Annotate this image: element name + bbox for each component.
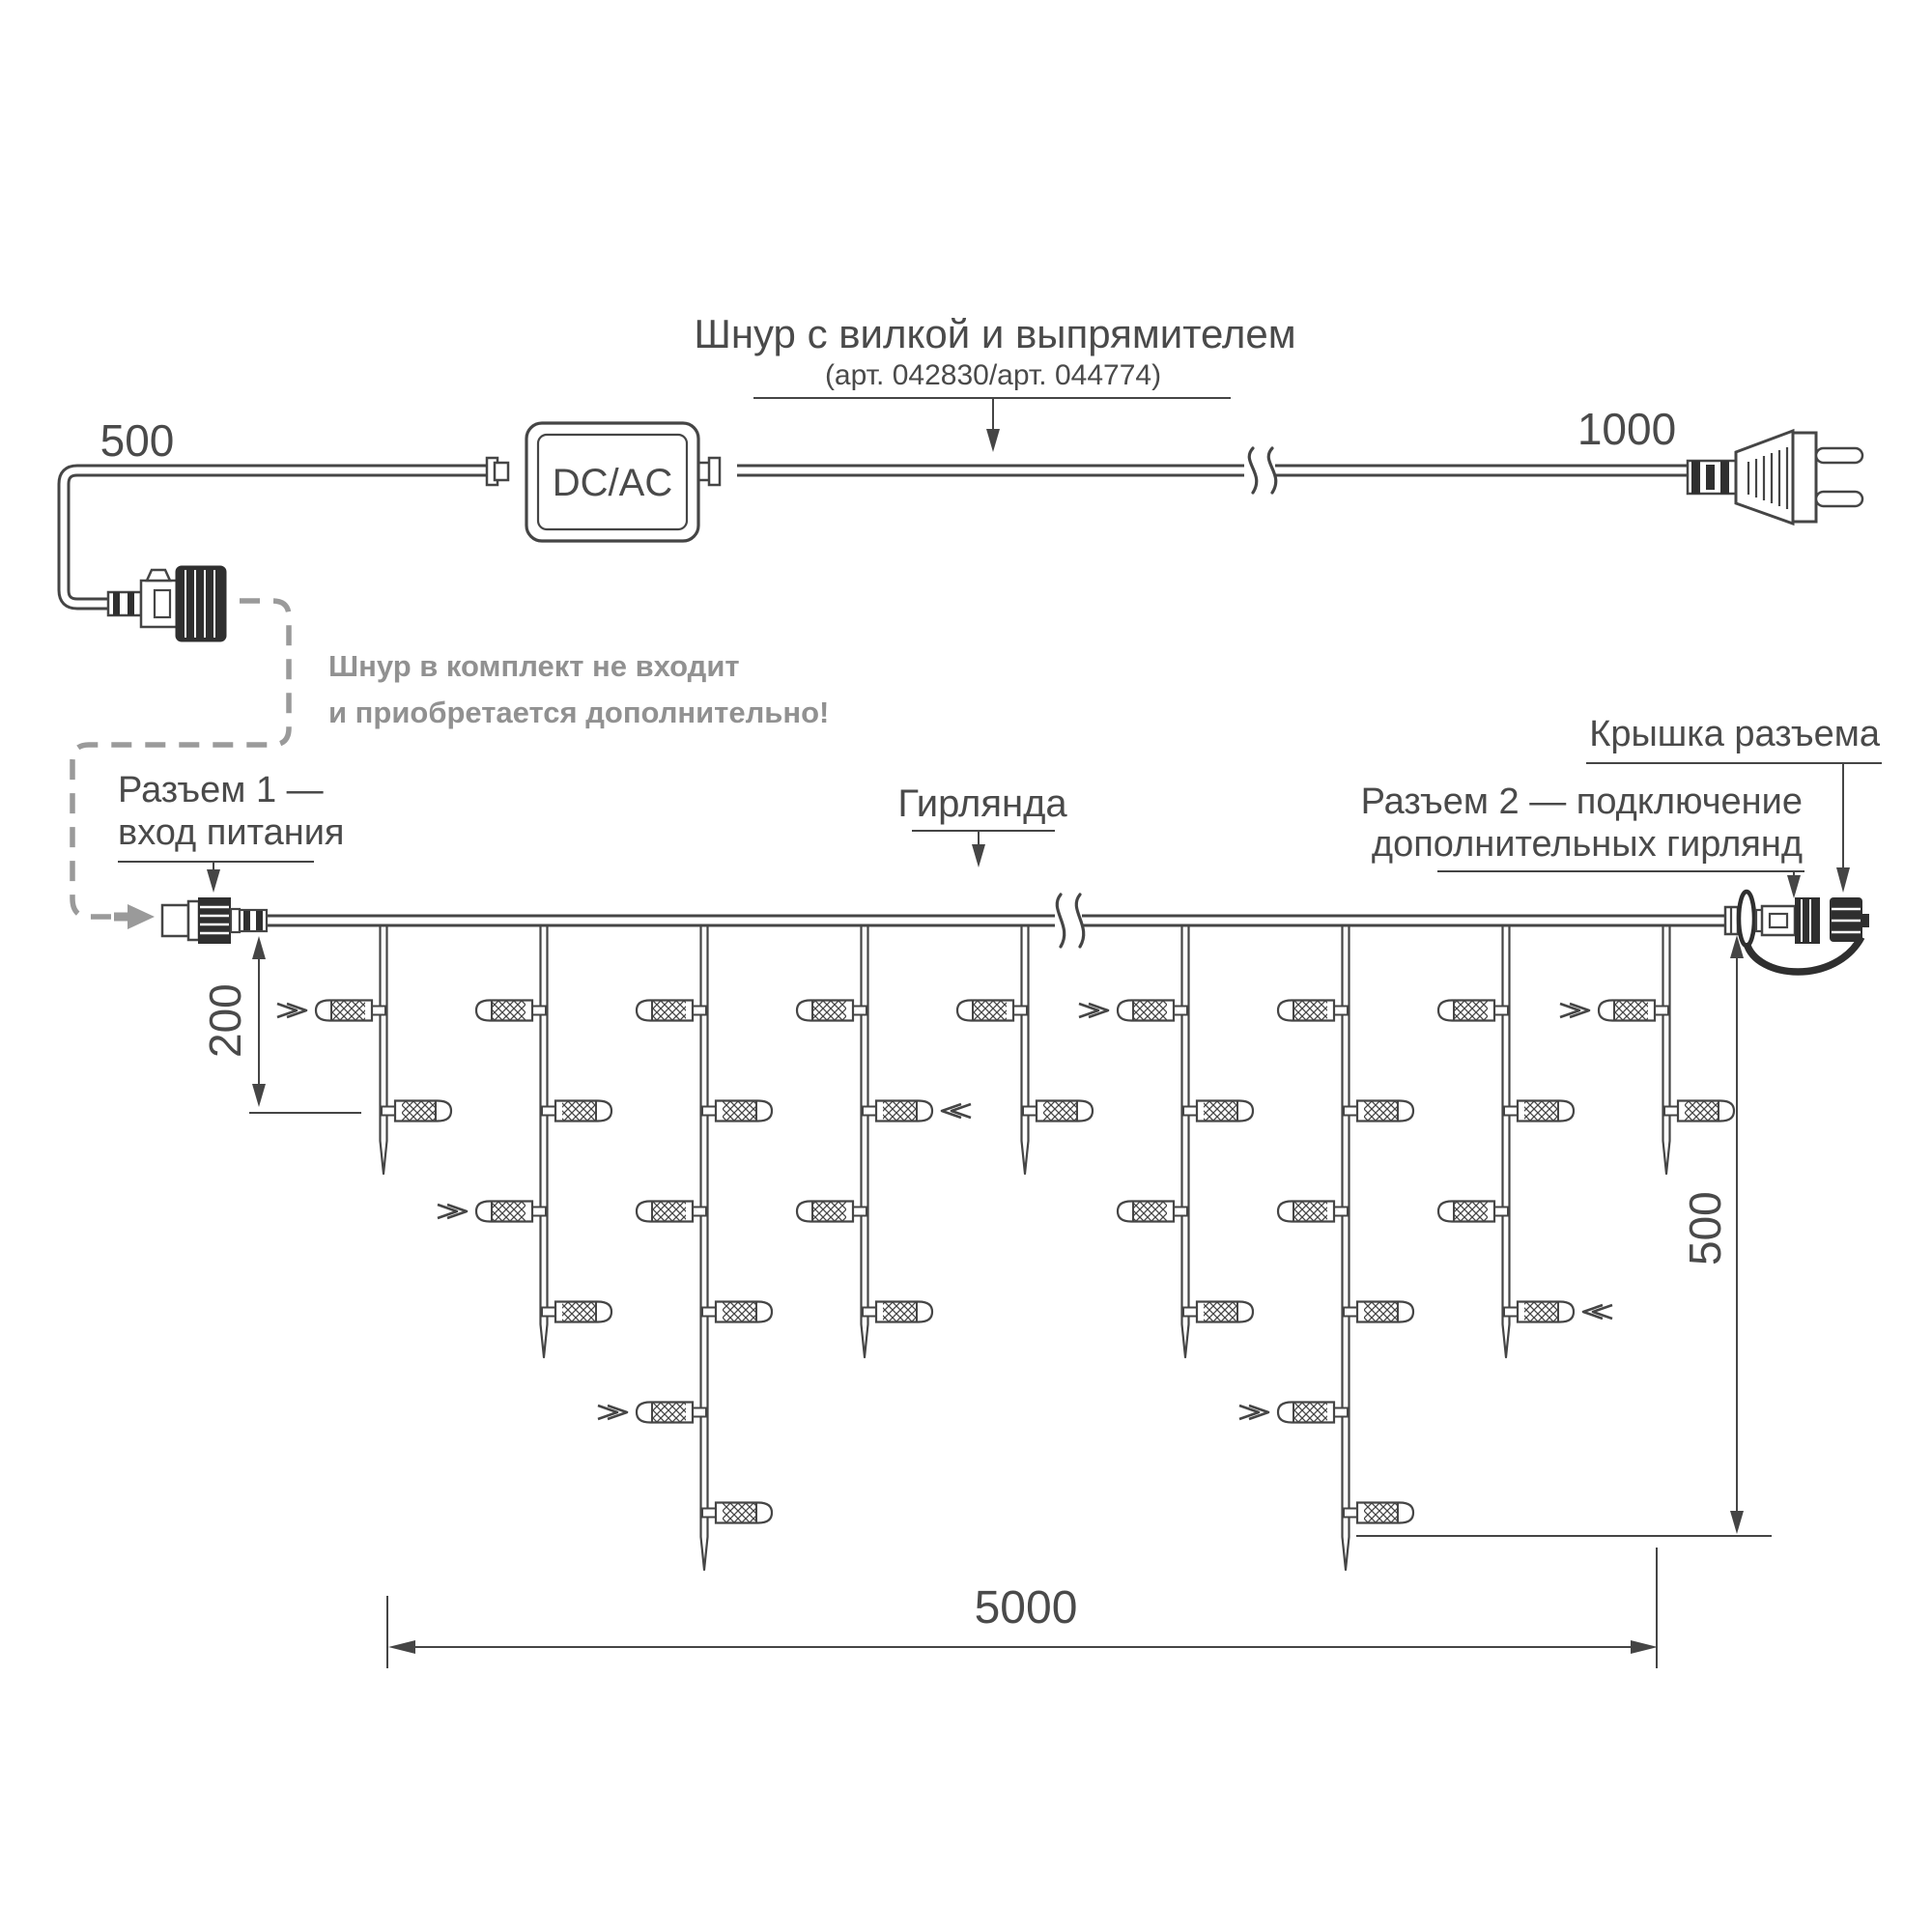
lanyard-loop-icon: [1739, 892, 1754, 946]
drop-wire: [862, 916, 868, 1357]
garland-drops: [277, 916, 1734, 1570]
bulb-hatch: [492, 1203, 526, 1221]
connector1-label: Разъем 1 — вход питания: [118, 770, 345, 893]
cord-break-icon: [1244, 448, 1276, 493]
power-cord-assembly: DC/AC: [64, 311, 1862, 641]
bulb-hatch: [723, 1303, 756, 1321]
bulb-hatch: [1454, 1203, 1488, 1221]
cord-subtitle: (арт. 042830/арт. 044774): [825, 359, 1161, 391]
bulb-hatch: [652, 1404, 686, 1422]
bulb-stub: [702, 1107, 716, 1116]
bulb-hatch: [1133, 1002, 1167, 1020]
drop-wire: [1182, 916, 1189, 1357]
cord-length-500: 500: [100, 415, 175, 466]
dim-5000-text: 5000: [975, 1582, 1078, 1634]
bulb-stub: [863, 1308, 876, 1317]
cord-length-1000: 1000: [1577, 404, 1676, 454]
bulb-stub: [863, 1107, 876, 1116]
cord-connector-icon: [108, 566, 226, 641]
bulb-hatch: [812, 1002, 846, 1020]
bulb-stub: [853, 1207, 867, 1216]
garland-label: Гирлянда: [897, 782, 1067, 867]
bulb-stub: [1334, 1408, 1348, 1417]
connector1-icon: [162, 897, 267, 944]
bulb-stub: [1344, 1509, 1357, 1518]
bulb-stub: [542, 1308, 555, 1317]
bulb-stub: [1334, 1207, 1348, 1216]
bulb-hatch: [1204, 1102, 1237, 1121]
power-cord-wire: [64, 470, 1690, 604]
bulb-hatch: [492, 1002, 526, 1020]
bulb-stub: [1655, 1007, 1668, 1015]
bulb-hatch: [1204, 1303, 1237, 1321]
eu-plug-icon: [1688, 431, 1862, 524]
bulb-stub: [1344, 1308, 1357, 1317]
bulb-stub: [542, 1107, 555, 1116]
dim-5000: 5000: [387, 1548, 1658, 1668]
connector2-label: Разъем 2 — подключение дополнительных ги…: [1361, 781, 1804, 898]
dim-500: 500: [1356, 935, 1772, 1536]
bulb-hatch: [1685, 1102, 1719, 1121]
drop-wire: [1503, 916, 1510, 1357]
bulb-hatch: [1293, 1203, 1327, 1221]
garland-wiring-diagram: DC/AC: [0, 0, 1932, 1932]
note-line1: Шнур в комплект не входит: [328, 649, 740, 683]
bulb-hatch: [1364, 1504, 1398, 1522]
bulb-stub: [1504, 1308, 1518, 1317]
bulb-hatch: [652, 1203, 686, 1221]
bulb-hatch: [1524, 1102, 1558, 1121]
bulb-hatch: [1293, 1002, 1327, 1020]
bulb-hatch: [562, 1303, 596, 1321]
bulb-stub: [372, 1007, 385, 1015]
bulb-stub: [382, 1107, 395, 1116]
bulb-stub: [702, 1308, 716, 1317]
dim-200: 200: [200, 936, 361, 1113]
bulb-hatch: [883, 1102, 917, 1121]
connector2-label-line1: Разъем 2 — подключение: [1361, 781, 1803, 822]
bulb-hatch: [1133, 1203, 1167, 1221]
bulb-hatch: [652, 1002, 686, 1020]
bulb-stub: [693, 1408, 706, 1417]
drop-wire: [381, 916, 387, 1174]
bulb-hatch: [1293, 1404, 1327, 1422]
connector1-label-line2: вход питания: [118, 812, 345, 853]
bulb-stub: [532, 1007, 546, 1015]
bulb-hatch: [723, 1102, 756, 1121]
bulb-stub: [532, 1207, 546, 1216]
bulb-stub: [1494, 1207, 1508, 1216]
diagram-page: DC/AC: [0, 0, 1932, 1932]
bulb-hatch: [1364, 1102, 1398, 1121]
bulb-hatch: [1043, 1102, 1077, 1121]
bulb-stub: [1494, 1007, 1508, 1015]
dashed-connection-path: [72, 601, 289, 917]
bulb-hatch: [1614, 1002, 1648, 1020]
bulb-hatch: [1524, 1303, 1558, 1321]
bulb-hatch: [812, 1203, 846, 1221]
bulb-stub: [1174, 1007, 1187, 1015]
bulb-stub: [1334, 1007, 1348, 1015]
bulb-stub: [1344, 1107, 1357, 1116]
bulb-hatch: [1454, 1002, 1488, 1020]
dim-500-text: 500: [1680, 1191, 1730, 1265]
not-included-note: Шнур в комплект не входит и приобретаетс…: [72, 601, 829, 929]
bulb-stub: [693, 1207, 706, 1216]
bulb-stub: [1174, 1207, 1187, 1216]
bulb-hatch: [562, 1102, 596, 1121]
cap-label-text: Крышка разъема: [1589, 714, 1881, 754]
bulb-stub: [1183, 1308, 1197, 1317]
bulb-hatch: [723, 1504, 756, 1522]
connector-cap-icon: [1830, 897, 1869, 942]
drop-wire: [1663, 916, 1670, 1174]
bulb-stub: [1023, 1107, 1037, 1116]
bulb-hatch: [1364, 1303, 1398, 1321]
bulb-stub: [693, 1007, 706, 1015]
bulb-stub: [1013, 1007, 1027, 1015]
bulb-stub: [1504, 1107, 1518, 1116]
cord-title-leader-arrow: [986, 398, 1000, 452]
bulb-stub: [1183, 1107, 1197, 1116]
connector2-icon: [1725, 892, 1869, 972]
drop-wire: [541, 916, 548, 1357]
connector2-label-line2: дополнительных гирлянд: [1372, 824, 1803, 865]
bulb-stub: [853, 1007, 867, 1015]
bulb-hatch: [331, 1002, 365, 1020]
bulb-hatch: [402, 1102, 436, 1121]
bus-break-icon: [1057, 895, 1084, 947]
dim-200-text: 200: [200, 983, 250, 1058]
garland-label-text: Гирлянда: [897, 782, 1067, 825]
bulb-stub: [702, 1509, 716, 1518]
dashed-arrow-icon: [114, 904, 155, 929]
bulb-hatch: [973, 1002, 1007, 1020]
drop-wire: [1022, 916, 1029, 1174]
adapter-box: DC/AC: [487, 423, 720, 541]
bulb-stub: [1664, 1107, 1678, 1116]
bulb-hatch: [883, 1303, 917, 1321]
connector1-label-line1: Разъем 1 —: [118, 770, 324, 810]
adapter-label: DC/AC: [553, 462, 672, 504]
cord-title: Шнур с вилкой и выпрямителем: [694, 311, 1295, 356]
note-line2: и приобретается дополнительно!: [328, 696, 829, 729]
